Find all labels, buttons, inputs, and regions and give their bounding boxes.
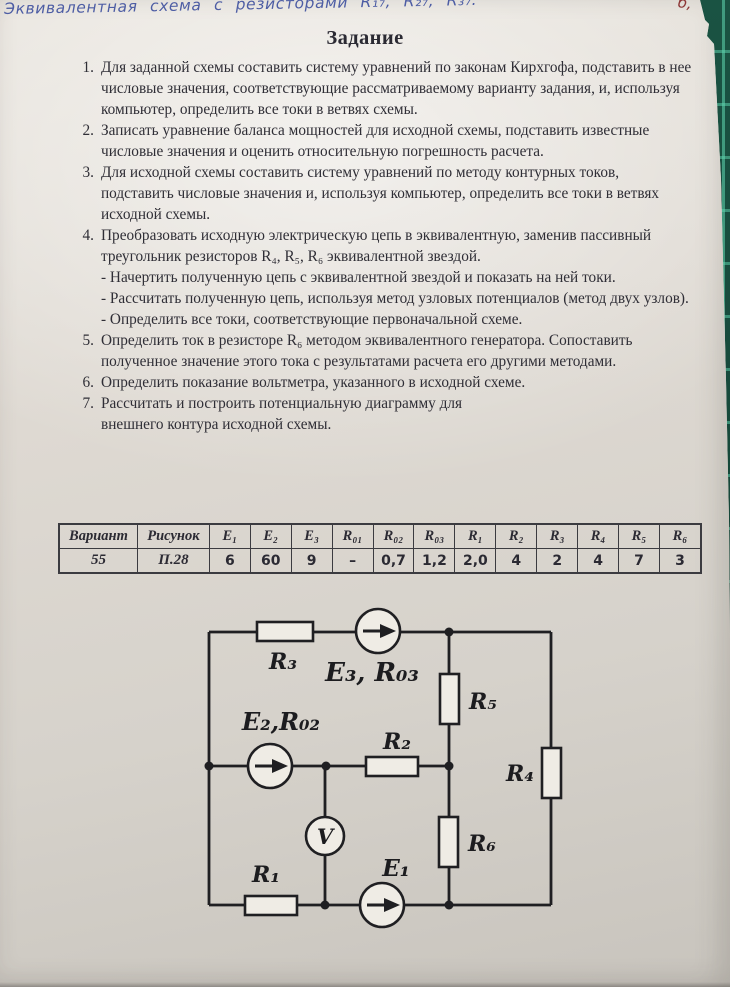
resistor-r6-body [439, 817, 458, 867]
label-e3-r03: E₃, R₀₃ [324, 658, 419, 688]
resistor-r2-body [366, 757, 418, 776]
source-e2-symbol [248, 744, 292, 788]
paper-sheet: Эквивалентная схема с резисторами R₁₇, R… [0, 0, 730, 987]
resistor-r5-body [440, 674, 459, 724]
photo-background-cutting-mat: Эквивалентная схема с резисторами R₁₇, R… [0, 0, 730, 987]
voltmeter-label: V [317, 824, 336, 849]
label-e2-r02: E₂,R₀₂ [241, 707, 320, 736]
resistor-r1-body [245, 896, 297, 915]
label-r5: R₅ [468, 689, 497, 715]
circuit-diagram: V R₃ E₃, R₀₃ E₂,R₀₂ R₂ R₅ R₄ R₆ E₁ R₁ [0, 0, 730, 987]
source-e3-symbol [356, 609, 400, 653]
label-r3: R₃ [268, 649, 297, 675]
label-r4: R₄ [505, 761, 534, 787]
label-r2: R₂ [382, 729, 411, 755]
source-e1-symbol [360, 883, 404, 927]
label-r1: R₁ [251, 862, 280, 888]
resistor-r3-body [257, 622, 313, 641]
voltmeter-symbol: V [306, 817, 344, 855]
resistor-r4-body [542, 748, 561, 798]
label-e1: E₁ [381, 855, 410, 882]
label-r6: R₆ [467, 831, 496, 857]
